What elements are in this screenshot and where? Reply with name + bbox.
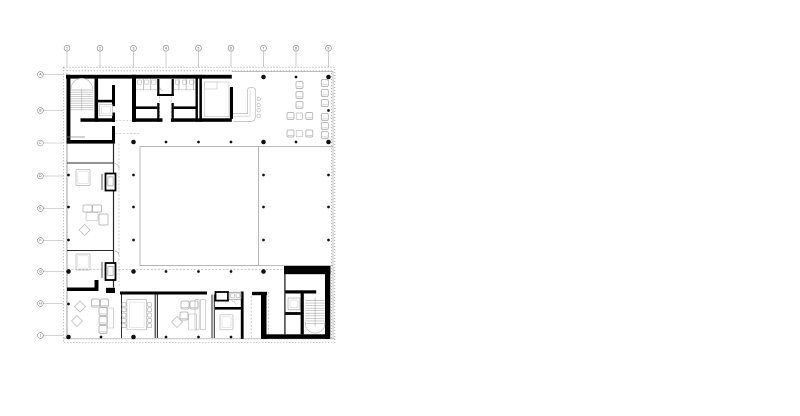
svg-text:4: 4 xyxy=(165,46,167,50)
svg-text:I: I xyxy=(40,334,41,338)
svg-text:1: 1 xyxy=(66,46,68,50)
svg-text:7: 7 xyxy=(263,46,265,50)
svg-text:5: 5 xyxy=(198,46,200,50)
svg-text:3: 3 xyxy=(133,46,135,50)
svg-text:9: 9 xyxy=(328,46,330,50)
svg-text:G: G xyxy=(39,270,42,274)
svg-text:2: 2 xyxy=(99,46,101,50)
svg-text:6: 6 xyxy=(230,46,232,50)
svg-text:F: F xyxy=(39,239,41,243)
svg-text:8: 8 xyxy=(295,46,297,50)
